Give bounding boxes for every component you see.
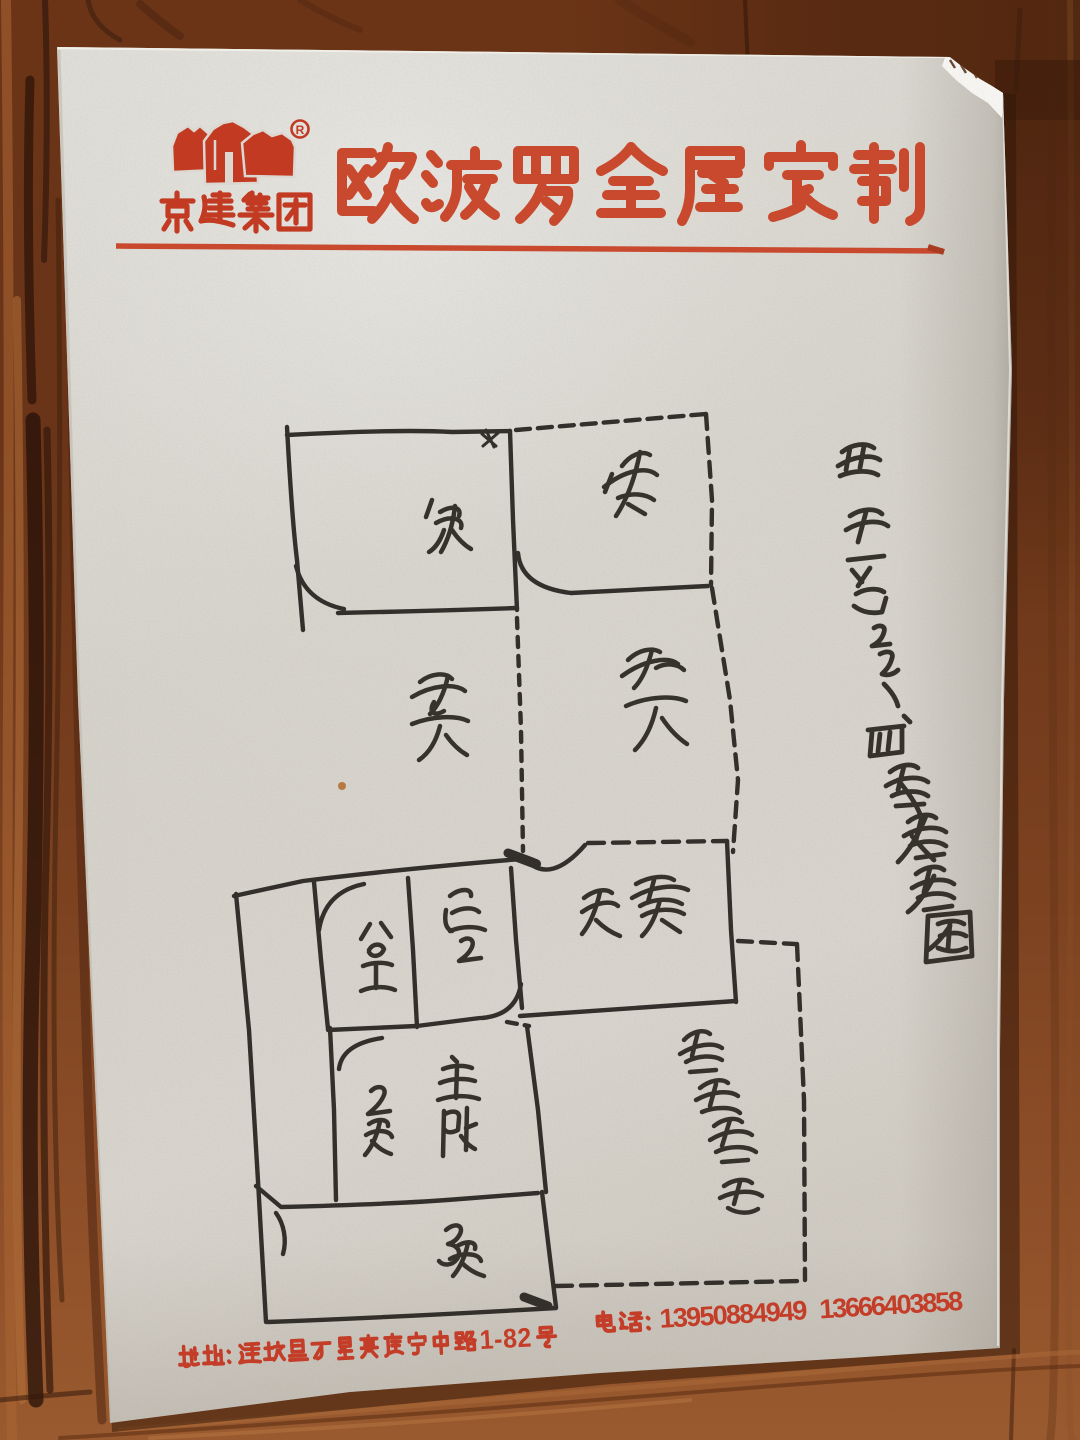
svg-text:1-82: 1-82 xyxy=(479,1321,532,1355)
svg-text:R: R xyxy=(296,123,305,137)
